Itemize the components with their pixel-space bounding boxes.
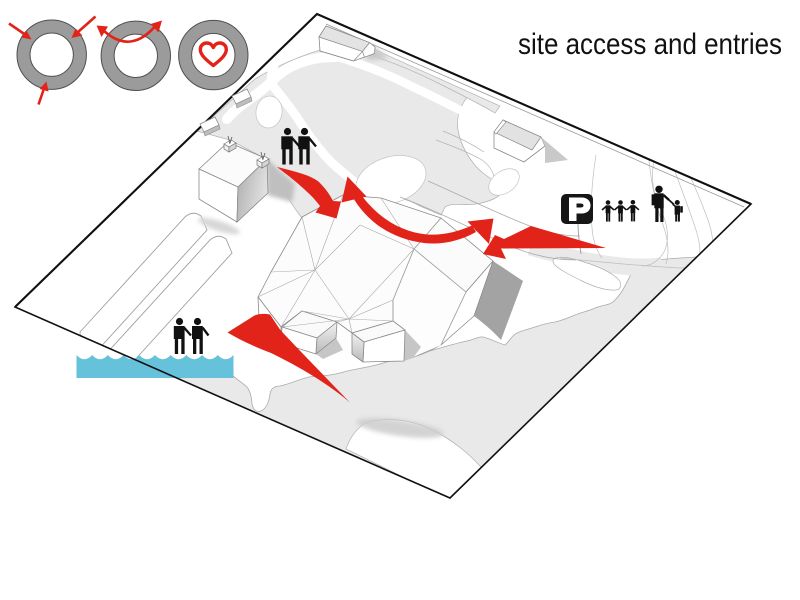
svg-text:site access and entries: site access and entries	[518, 28, 782, 61]
